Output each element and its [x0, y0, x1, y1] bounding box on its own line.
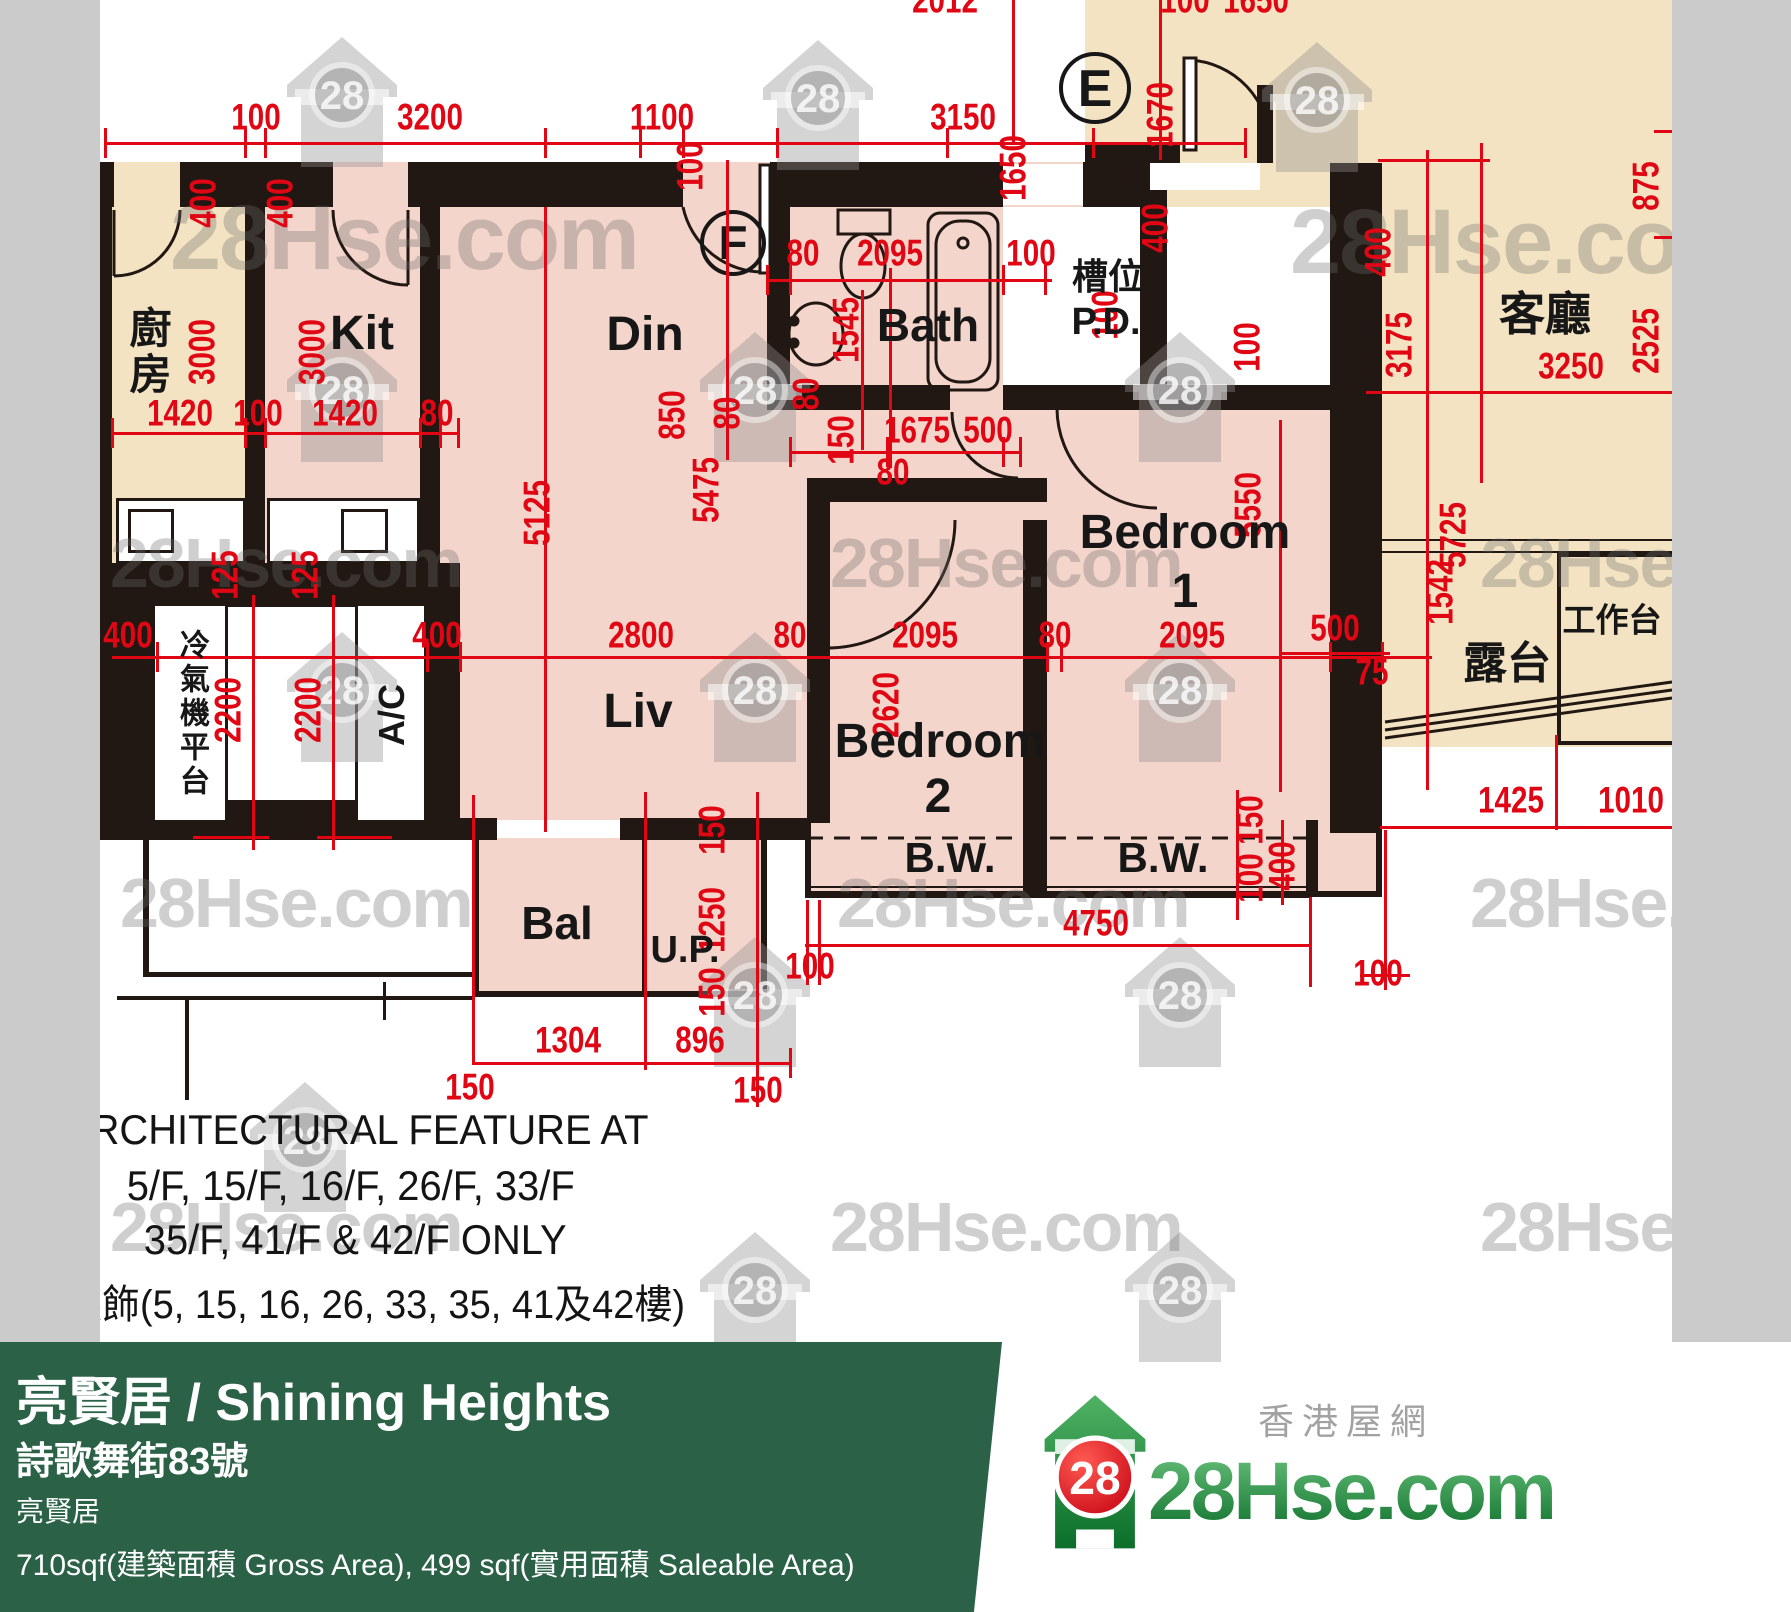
room-label: Din	[606, 311, 683, 359]
dim-line	[756, 792, 759, 1107]
dim-line	[156, 642, 159, 672]
dim-label: 400	[262, 178, 299, 227]
room-label: P.D.	[1071, 303, 1140, 341]
dim-label: 80	[774, 617, 807, 654]
room-label: Bedroom	[1080, 509, 1291, 557]
dim-label: 2095	[1159, 617, 1225, 654]
dim-label: 150	[733, 1072, 782, 1109]
room-label: A/C	[374, 684, 410, 746]
dim-line	[1092, 128, 1095, 158]
dim-label: 1010	[1598, 782, 1664, 819]
dim-label: 1545	[828, 297, 865, 363]
room-label: Bath	[877, 302, 979, 348]
dim-label: 1420	[312, 395, 378, 432]
dim-label: 80	[877, 454, 910, 491]
estate-title: 亮賢居 / Shining Heights	[16, 1360, 611, 1435]
dim-line	[766, 265, 769, 295]
dim-line	[111, 418, 114, 448]
room-label: 露台	[1463, 642, 1551, 686]
dim-label: 1420	[147, 395, 213, 432]
dim-label: 2800	[608, 617, 674, 654]
door-arc-e	[1190, 60, 1270, 145]
room-label: Kit	[330, 310, 394, 358]
dim-label: 2012	[912, 0, 978, 19]
dim-label: 100	[233, 395, 282, 432]
dim-label: 150	[694, 967, 731, 1016]
dim-label: 1425	[1478, 782, 1544, 819]
dim-label: 400	[103, 617, 152, 654]
dim-line	[1654, 130, 1672, 133]
dim-line	[1012, 0, 1015, 143]
estate-area: 710sqf(建築面積 Gross Area), 499 sqf(實用面積 Sa…	[16, 1540, 855, 1584]
dim-line	[317, 836, 392, 839]
dim-line	[1019, 437, 1022, 467]
room-label: B.W.	[905, 837, 996, 879]
dim-label: 1670	[1142, 82, 1179, 148]
dim-line	[767, 279, 1052, 282]
dim-label: 150	[445, 1069, 494, 1106]
brand-badge-28: 28	[1069, 1452, 1120, 1504]
room-label: Bal	[521, 900, 593, 946]
dim-line	[1378, 159, 1490, 162]
dim-label: 1100	[630, 99, 694, 136]
dim-label: 80	[1039, 617, 1072, 654]
brand-house-icon: 28	[1040, 1393, 1150, 1561]
dim-label: 2200	[210, 677, 247, 743]
dim-line	[252, 595, 255, 850]
room-label: 工作台	[1563, 604, 1662, 637]
dim-label: 400	[1137, 203, 1174, 252]
dim-label: 896	[675, 1022, 724, 1059]
room-label: 冷氣機平台	[176, 629, 206, 799]
dim-label: 1304	[535, 1022, 601, 1059]
dim-line	[805, 944, 1312, 947]
dim-line	[1279, 420, 1282, 792]
dim-label: 2095	[892, 617, 958, 654]
brand-logo-block: 28 香港屋網 28Hse.com	[1040, 1385, 1780, 1605]
dim-label: 1675	[884, 412, 950, 449]
dim-line	[644, 792, 647, 1070]
dim-line	[789, 1048, 792, 1078]
dim-label: 100	[1160, 0, 1209, 19]
room-label: Liv	[603, 688, 672, 736]
dim-label: 3250	[1538, 348, 1604, 385]
dim-line	[1244, 128, 1247, 158]
dim-line	[1555, 735, 1558, 830]
dim-line	[457, 418, 460, 448]
note-line: ARCHITECTURAL FEATURE AT	[64, 1106, 685, 1154]
dim-line	[472, 795, 475, 1065]
note-line: 35/F, 41/F & 42/F ONLY	[144, 1216, 685, 1264]
dim-line	[1002, 265, 1005, 295]
floorplan-page: 28 ARCHITECTURAL FEATURE AT 5/F, 15/F, 1…	[0, 0, 1791, 1612]
dim-label: 5475	[688, 457, 725, 523]
dim-line	[193, 836, 269, 839]
brand-tagline: 香港屋網	[1258, 1393, 1434, 1445]
dim-label: 80	[788, 378, 825, 411]
dim-label: 100	[1229, 322, 1266, 371]
dim-label: 100	[231, 99, 280, 136]
dim-label: 100	[785, 948, 834, 985]
estate-address: 詩歌舞街83號	[16, 1430, 248, 1485]
note-line: 5/F, 15/F, 16/F, 26/F, 33/F	[127, 1162, 685, 1210]
door-arc-kitchen-left	[114, 210, 180, 276]
room-label: 廚房	[126, 306, 168, 398]
dim-label: 4750	[1063, 905, 1129, 942]
dim-label: 5725	[1435, 502, 1472, 568]
room-label: U.P.	[650, 931, 719, 969]
dim-label: 125	[207, 550, 244, 599]
dim-label: 80	[787, 235, 820, 272]
dim-label: 400	[185, 178, 222, 227]
note-line: 裝飾(5, 15, 16, 26, 33, 35, 41及42樓)	[64, 1272, 685, 1330]
dim-label: 3000	[184, 319, 221, 385]
dim-label: 1650	[995, 135, 1032, 201]
dim-label: 3000	[294, 319, 331, 385]
dim-line	[1426, 150, 1429, 790]
dim-label: 400	[1264, 841, 1301, 890]
dim-line	[473, 1062, 791, 1065]
dim-label: 100	[1006, 235, 1055, 272]
dim-label: 80	[421, 395, 454, 432]
footer-info-bar: 亮賢居 / Shining Heights 詩歌舞街83號 亮賢居 710sqf…	[0, 1342, 1002, 1612]
dim-label: 3175	[1381, 312, 1418, 378]
dim-label: 150	[1232, 795, 1269, 844]
dim-line	[112, 656, 1432, 659]
dim-label: 500	[1310, 610, 1359, 647]
door-arc-bedroom1	[1057, 408, 1157, 508]
dim-line	[104, 128, 107, 158]
dim-label: 3150	[930, 99, 996, 136]
dim-label: 75	[1356, 654, 1389, 691]
dim-line	[776, 128, 779, 158]
dim-label: 2200	[290, 677, 327, 743]
dim-line	[1654, 236, 1672, 239]
room-label: 2	[925, 773, 952, 821]
room-label: 1	[1172, 568, 1199, 616]
dim-label: 150	[694, 805, 731, 854]
dim-label: 3200	[397, 99, 463, 136]
dim-label: 100	[1353, 955, 1402, 992]
dim-label: 125	[287, 550, 324, 599]
room-label: B.W.	[1118, 837, 1209, 879]
dim-line	[332, 595, 335, 850]
left-crop-strip	[0, 0, 100, 1342]
right-crop-strip	[1672, 0, 1791, 1342]
dim-line	[544, 128, 547, 158]
dim-label: 5125	[519, 480, 556, 546]
door-marker-f: F	[700, 210, 766, 276]
dim-label: 1542	[1422, 559, 1459, 625]
dim-label: 2525	[1628, 308, 1665, 374]
dim-line	[789, 437, 792, 467]
dim-line	[1366, 391, 1672, 394]
dim-label: 150	[823, 415, 860, 464]
door-arc-kit	[333, 210, 408, 285]
dim-label: 100	[672, 141, 709, 190]
room-label: 槽位	[1072, 259, 1144, 295]
estate-name: 亮賢居	[16, 1490, 100, 1530]
room-label: Bedroom	[835, 718, 1046, 766]
dim-line	[1480, 143, 1483, 483]
architectural-note: ARCHITECTURAL FEATURE AT 5/F, 15/F, 16/F…	[64, 1106, 685, 1330]
dim-label: 850	[654, 390, 691, 439]
dim-label: 500	[963, 412, 1012, 449]
dim-label: 400	[412, 617, 461, 654]
dim-label: 400	[1360, 227, 1397, 276]
dim-label: 1650	[1223, 0, 1289, 19]
dim-label: 875	[1628, 161, 1665, 210]
dim-line	[1309, 897, 1312, 987]
room-label: 客廳	[1499, 291, 1591, 337]
dim-line	[1380, 826, 1672, 829]
dim-label: 2095	[857, 235, 923, 272]
door-marker-e: E	[1059, 52, 1131, 124]
brand-name: 28Hse.com	[1148, 1445, 1554, 1539]
dim-label: 80	[709, 397, 746, 430]
